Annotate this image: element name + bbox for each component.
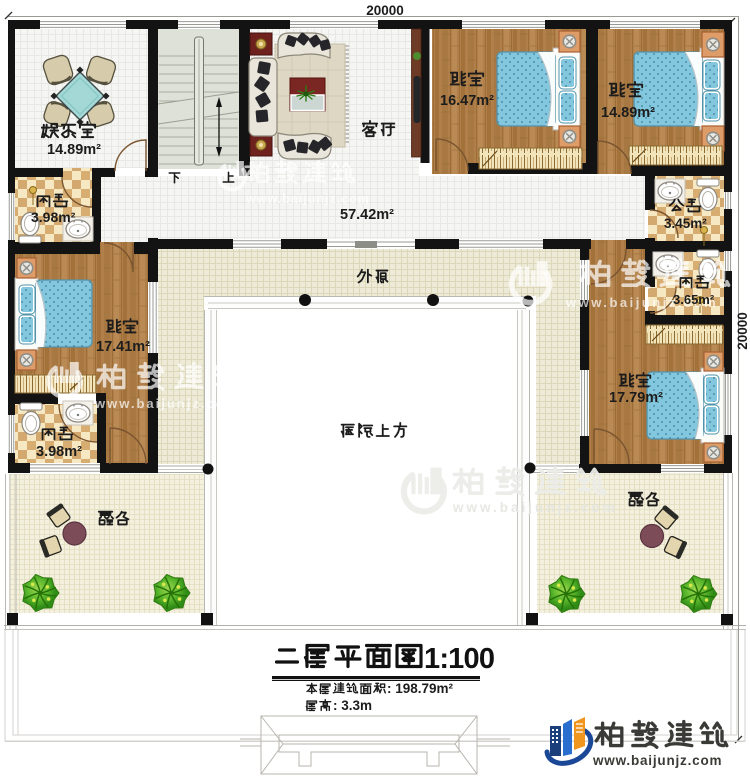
svg-text:14.89m²: 14.89m² [47, 142, 101, 158]
svg-text:57.42m²: 57.42m² [340, 207, 394, 223]
svg-text:: 198.79m²: : 198.79m² [387, 681, 454, 696]
svg-text:www.baijunjz.com: www.baijunjz.com [452, 500, 618, 515]
svg-text:16.47m²: 16.47m² [440, 93, 494, 109]
svg-text:3.98m²: 3.98m² [31, 209, 76, 225]
svg-text:: 3.3m: : 3.3m [333, 698, 372, 713]
svg-text:3.45m²: 3.45m² [664, 216, 707, 231]
svg-text:20000: 20000 [735, 312, 750, 350]
svg-text:17.41m²: 17.41m² [96, 339, 150, 355]
svg-text:www.baijunjz.com: www.baijunjz.com [94, 396, 239, 411]
svg-text:www.baijunjz.com: www.baijunjz.com [592, 753, 722, 768]
svg-text:1:100: 1:100 [424, 643, 494, 675]
svg-text:17.79m²: 17.79m² [609, 390, 663, 406]
svg-text:www.baijunjz.com: www.baijunjz.com [245, 192, 370, 206]
svg-text:20000: 20000 [366, 3, 404, 18]
svg-text:3.98m²: 3.98m² [36, 444, 82, 460]
svg-text:14.89m²: 14.89m² [601, 105, 655, 121]
svg-text:3.65m²: 3.65m² [673, 292, 715, 307]
